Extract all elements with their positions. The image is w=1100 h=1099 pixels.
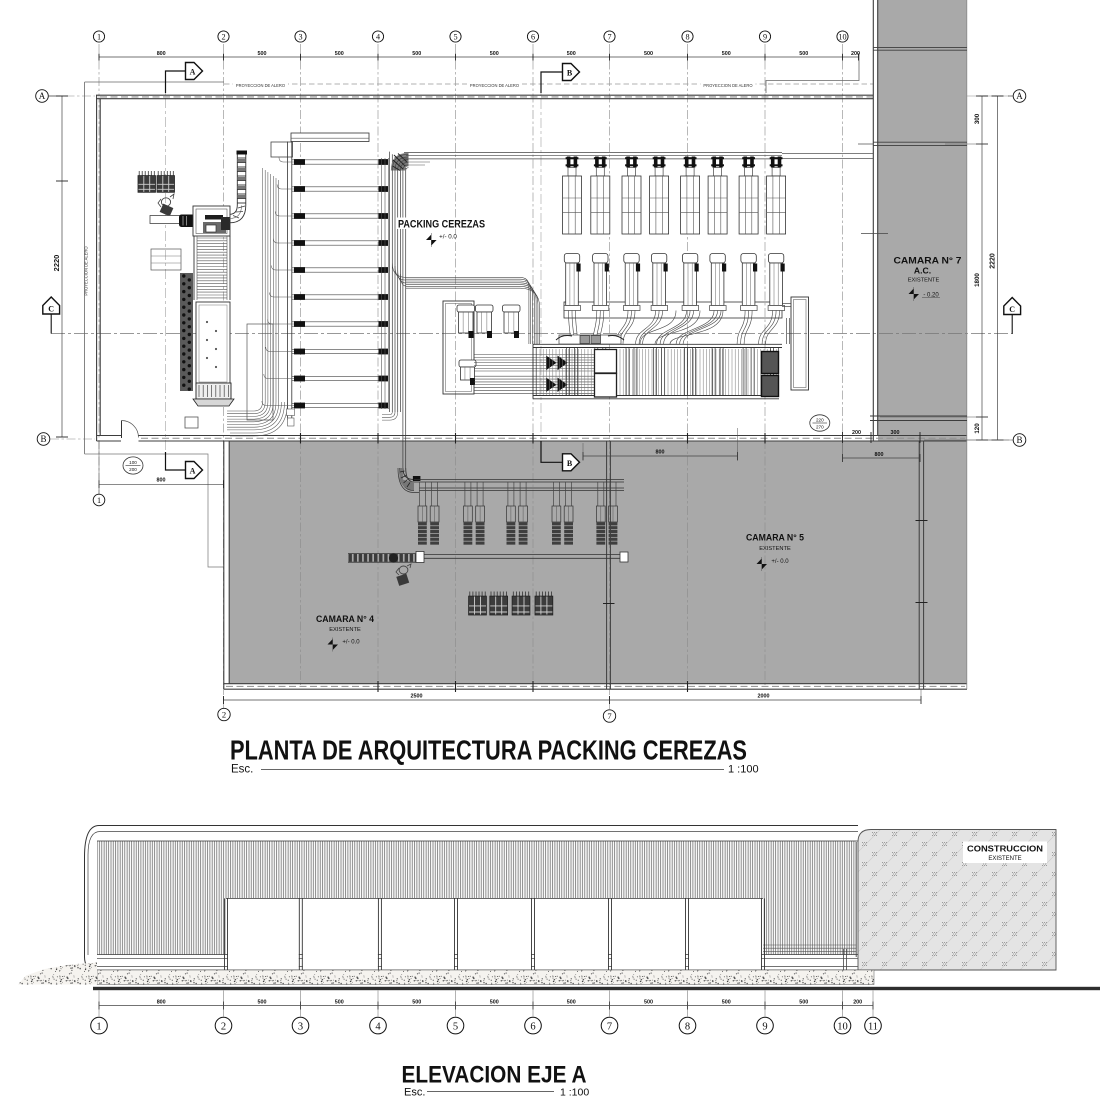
svg-text:2500: 2500	[411, 694, 423, 700]
svg-text:B: B	[567, 459, 573, 468]
svg-text:+/- 0.0: +/- 0.0	[342, 640, 360, 646]
svg-text:8: 8	[685, 32, 689, 41]
svg-text:800: 800	[656, 450, 665, 456]
svg-text:500: 500	[490, 1000, 499, 1006]
svg-text:500: 500	[258, 1000, 267, 1006]
svg-text:8: 8	[685, 1022, 690, 1033]
svg-text:200: 200	[852, 430, 861, 436]
svg-text:500: 500	[335, 51, 344, 57]
svg-text:B: B	[567, 69, 573, 78]
svg-text:1: 1	[97, 32, 101, 41]
svg-text:7: 7	[607, 1022, 612, 1033]
svg-text:A: A	[190, 467, 196, 476]
svg-text:200: 200	[853, 1000, 862, 1006]
svg-text:500: 500	[335, 1000, 344, 1006]
svg-text:1: 1	[96, 1022, 101, 1033]
svg-text:EXISTENTE: EXISTENTE	[759, 546, 791, 552]
svg-text:EXISTENTE: EXISTENTE	[329, 627, 361, 633]
svg-text:2220: 2220	[52, 255, 61, 272]
svg-text:CAMARA N° 5: CAMARA N° 5	[746, 532, 804, 543]
svg-text:500: 500	[722, 1000, 731, 1006]
svg-text:500: 500	[412, 51, 421, 57]
svg-text:800: 800	[875, 452, 884, 458]
svg-text:1 :100: 1 :100	[728, 764, 759, 776]
svg-text:800: 800	[157, 1000, 166, 1006]
svg-text:220: 220	[816, 417, 824, 422]
svg-text:2: 2	[222, 710, 226, 720]
svg-text:EXISTENTE: EXISTENTE	[908, 278, 940, 284]
svg-text:500: 500	[412, 1000, 421, 1006]
svg-text:120: 120	[974, 423, 981, 434]
svg-text:EXISTENTE: EXISTENTE	[988, 856, 1021, 862]
svg-text:CAMARA N° 7: CAMARA N° 7	[894, 255, 962, 266]
svg-text:4: 4	[375, 1022, 381, 1033]
svg-text:800: 800	[157, 478, 166, 484]
svg-text:500: 500	[799, 51, 808, 57]
svg-text:5: 5	[453, 1022, 458, 1033]
svg-text:Esc.: Esc.	[404, 1087, 425, 1099]
svg-text:500: 500	[722, 51, 731, 57]
svg-text:1800: 1800	[974, 273, 981, 287]
svg-text:6: 6	[531, 32, 535, 41]
svg-text:Esc.: Esc.	[231, 764, 253, 776]
svg-text:A: A	[39, 91, 46, 101]
svg-text:+/- 0.0: +/- 0.0	[439, 234, 457, 241]
svg-text:5: 5	[453, 32, 457, 41]
svg-text:500: 500	[567, 1000, 576, 1006]
svg-text:10: 10	[837, 1022, 848, 1033]
svg-text:200: 200	[129, 467, 137, 472]
svg-text:2000: 2000	[758, 694, 770, 700]
svg-text:10: 10	[838, 32, 846, 41]
svg-text:270: 270	[816, 424, 824, 429]
svg-text:1 :100: 1 :100	[560, 1087, 589, 1099]
svg-text:PROYECCION DE ALERO: PROYECCION DE ALERO	[236, 83, 285, 88]
svg-text:A: A	[1016, 91, 1023, 101]
svg-text:300: 300	[891, 430, 900, 436]
svg-text:3: 3	[298, 32, 302, 41]
svg-text:500: 500	[258, 51, 267, 57]
svg-text:PROYECCION DE ALERO: PROYECCION DE ALERO	[703, 83, 752, 88]
svg-text:800: 800	[157, 51, 166, 57]
svg-text:CONSTRUCCION: CONSTRUCCION	[967, 844, 1043, 854]
svg-text:3: 3	[298, 1022, 303, 1033]
svg-text:C: C	[48, 305, 54, 314]
svg-text:6: 6	[530, 1022, 535, 1033]
svg-text:7: 7	[607, 32, 611, 41]
svg-text:9: 9	[762, 1022, 767, 1033]
svg-text:500: 500	[567, 51, 576, 57]
svg-text:2220: 2220	[990, 253, 997, 269]
svg-text:B: B	[1016, 435, 1022, 445]
svg-text:100: 100	[129, 460, 137, 465]
svg-text:1: 1	[97, 496, 101, 505]
svg-text:B: B	[40, 434, 46, 444]
svg-text:ELEVACION EJE A: ELEVACION EJE A	[402, 1062, 587, 1089]
svg-text:9: 9	[763, 32, 767, 41]
svg-text:+/- 0.0: +/- 0.0	[771, 559, 789, 565]
svg-text:PLANTA DE ARQUITECTURA PACKING: PLANTA DE ARQUITECTURA PACKING CEREZAS	[230, 735, 747, 766]
svg-text:C: C	[1009, 305, 1015, 314]
svg-text:4: 4	[376, 32, 380, 41]
svg-text:200: 200	[851, 51, 860, 57]
svg-text:PACKING CEREZAS: PACKING CEREZAS	[398, 218, 485, 230]
svg-text:7: 7	[607, 711, 612, 721]
svg-text:500: 500	[644, 51, 653, 57]
svg-text:500: 500	[490, 51, 499, 57]
svg-text:PROYECCION DE ALERO: PROYECCION DE ALERO	[84, 246, 89, 295]
svg-text:300: 300	[974, 113, 981, 124]
svg-text:11: 11	[868, 1022, 878, 1033]
svg-text:500: 500	[799, 1000, 808, 1006]
svg-text:A: A	[190, 68, 196, 77]
svg-text:A.C.: A.C.	[914, 266, 931, 276]
svg-text:CAMARA N° 4: CAMARA N° 4	[316, 613, 375, 624]
svg-text:PROYECCION DE ALERO: PROYECCION DE ALERO	[470, 83, 519, 88]
svg-text:2: 2	[221, 32, 225, 41]
svg-text:2: 2	[221, 1022, 226, 1033]
svg-text:500: 500	[644, 1000, 653, 1006]
